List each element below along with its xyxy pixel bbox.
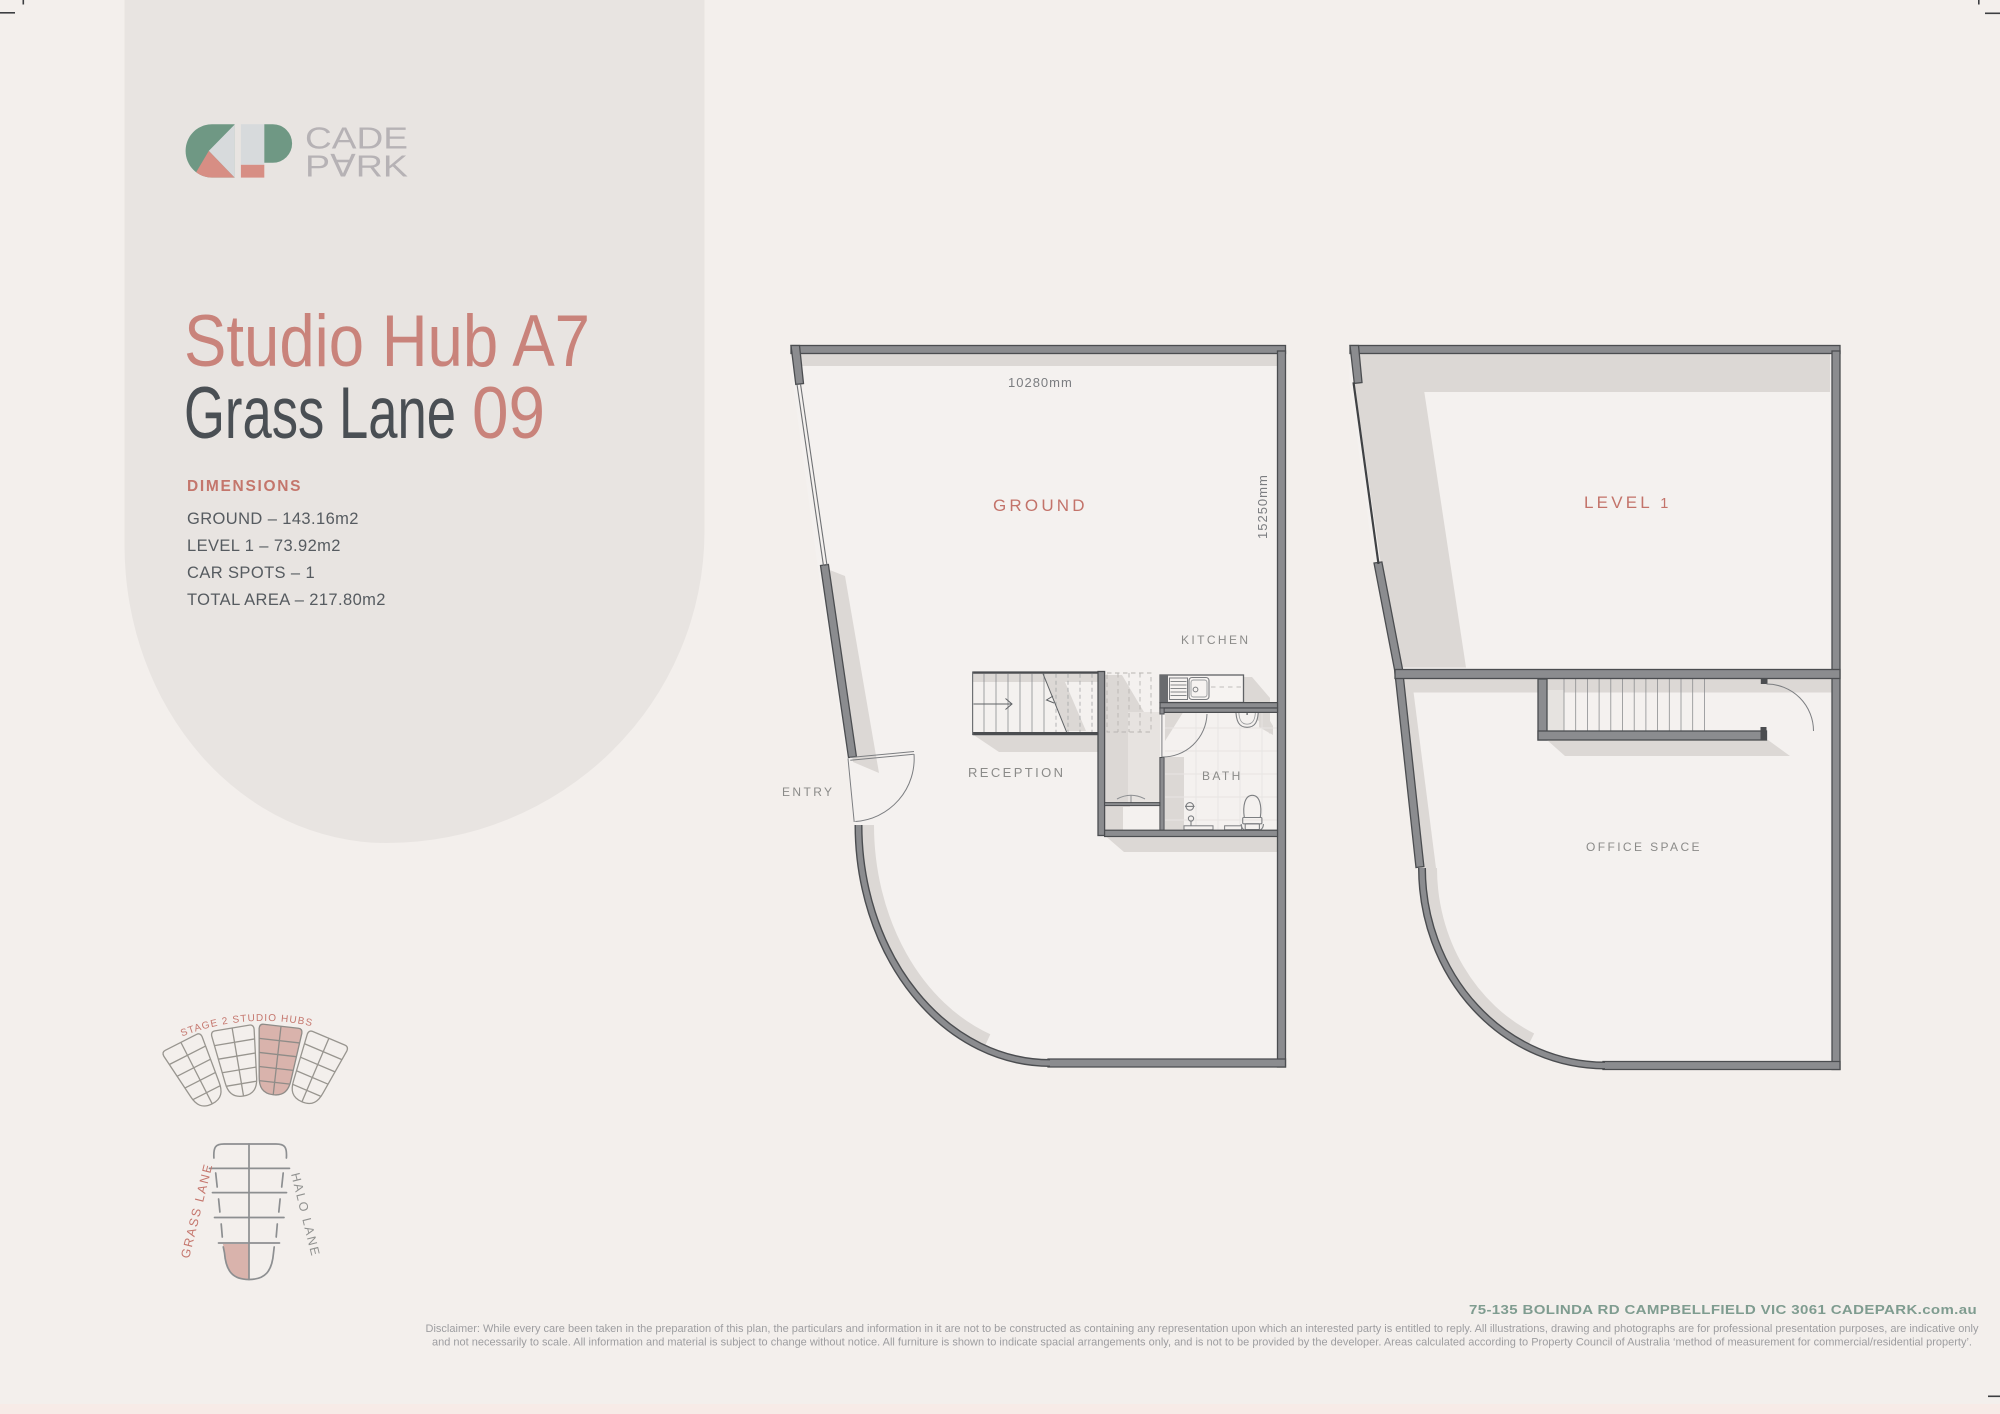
svg-text:GROUND – 143.16m2: GROUND – 143.16m2 <box>187 510 359 528</box>
svg-text:TOTAL AREA – 217.80m2: TOTAL AREA – 217.80m2 <box>187 591 386 609</box>
svg-text:GROUND: GROUND <box>993 496 1088 515</box>
svg-text:Grass Lane: Grass Lane <box>184 373 456 454</box>
svg-text:09: 09 <box>472 373 545 454</box>
svg-text:10280mm: 10280mm <box>1008 375 1073 390</box>
svg-text:15250mm: 15250mm <box>1255 474 1270 539</box>
svg-text:75-135 BOLINDA RD CAMPBELLFIEL: 75-135 BOLINDA RD CAMPBELLFIELD VIC 3061… <box>1469 1303 1977 1317</box>
svg-text:BATH: BATH <box>1202 769 1243 783</box>
svg-text:P∀RK: P∀RK <box>305 148 408 183</box>
svg-text:Studio Hub A7: Studio Hub A7 <box>184 301 590 382</box>
svg-text:and not necessarily to scale.: and not necessarily to scale. All inform… <box>432 1337 1972 1349</box>
svg-text:DIMENSIONS: DIMENSIONS <box>187 478 302 495</box>
svg-text:LEVEL 1: LEVEL 1 <box>1584 493 1671 512</box>
svg-text:KITCHEN: KITCHEN <box>1181 633 1250 647</box>
svg-text:Disclaimer: While every care b: Disclaimer: While every care been taken … <box>426 1323 1979 1335</box>
svg-text:LEVEL 1 – 73.92m2: LEVEL 1 – 73.92m2 <box>187 537 341 555</box>
svg-text:ENTRY: ENTRY <box>782 785 834 799</box>
svg-text:RECEPTION: RECEPTION <box>968 765 1065 780</box>
svg-text:OFFICE SPACE: OFFICE SPACE <box>1586 840 1702 854</box>
svg-text:CAR SPOTS – 1: CAR SPOTS – 1 <box>187 564 315 582</box>
